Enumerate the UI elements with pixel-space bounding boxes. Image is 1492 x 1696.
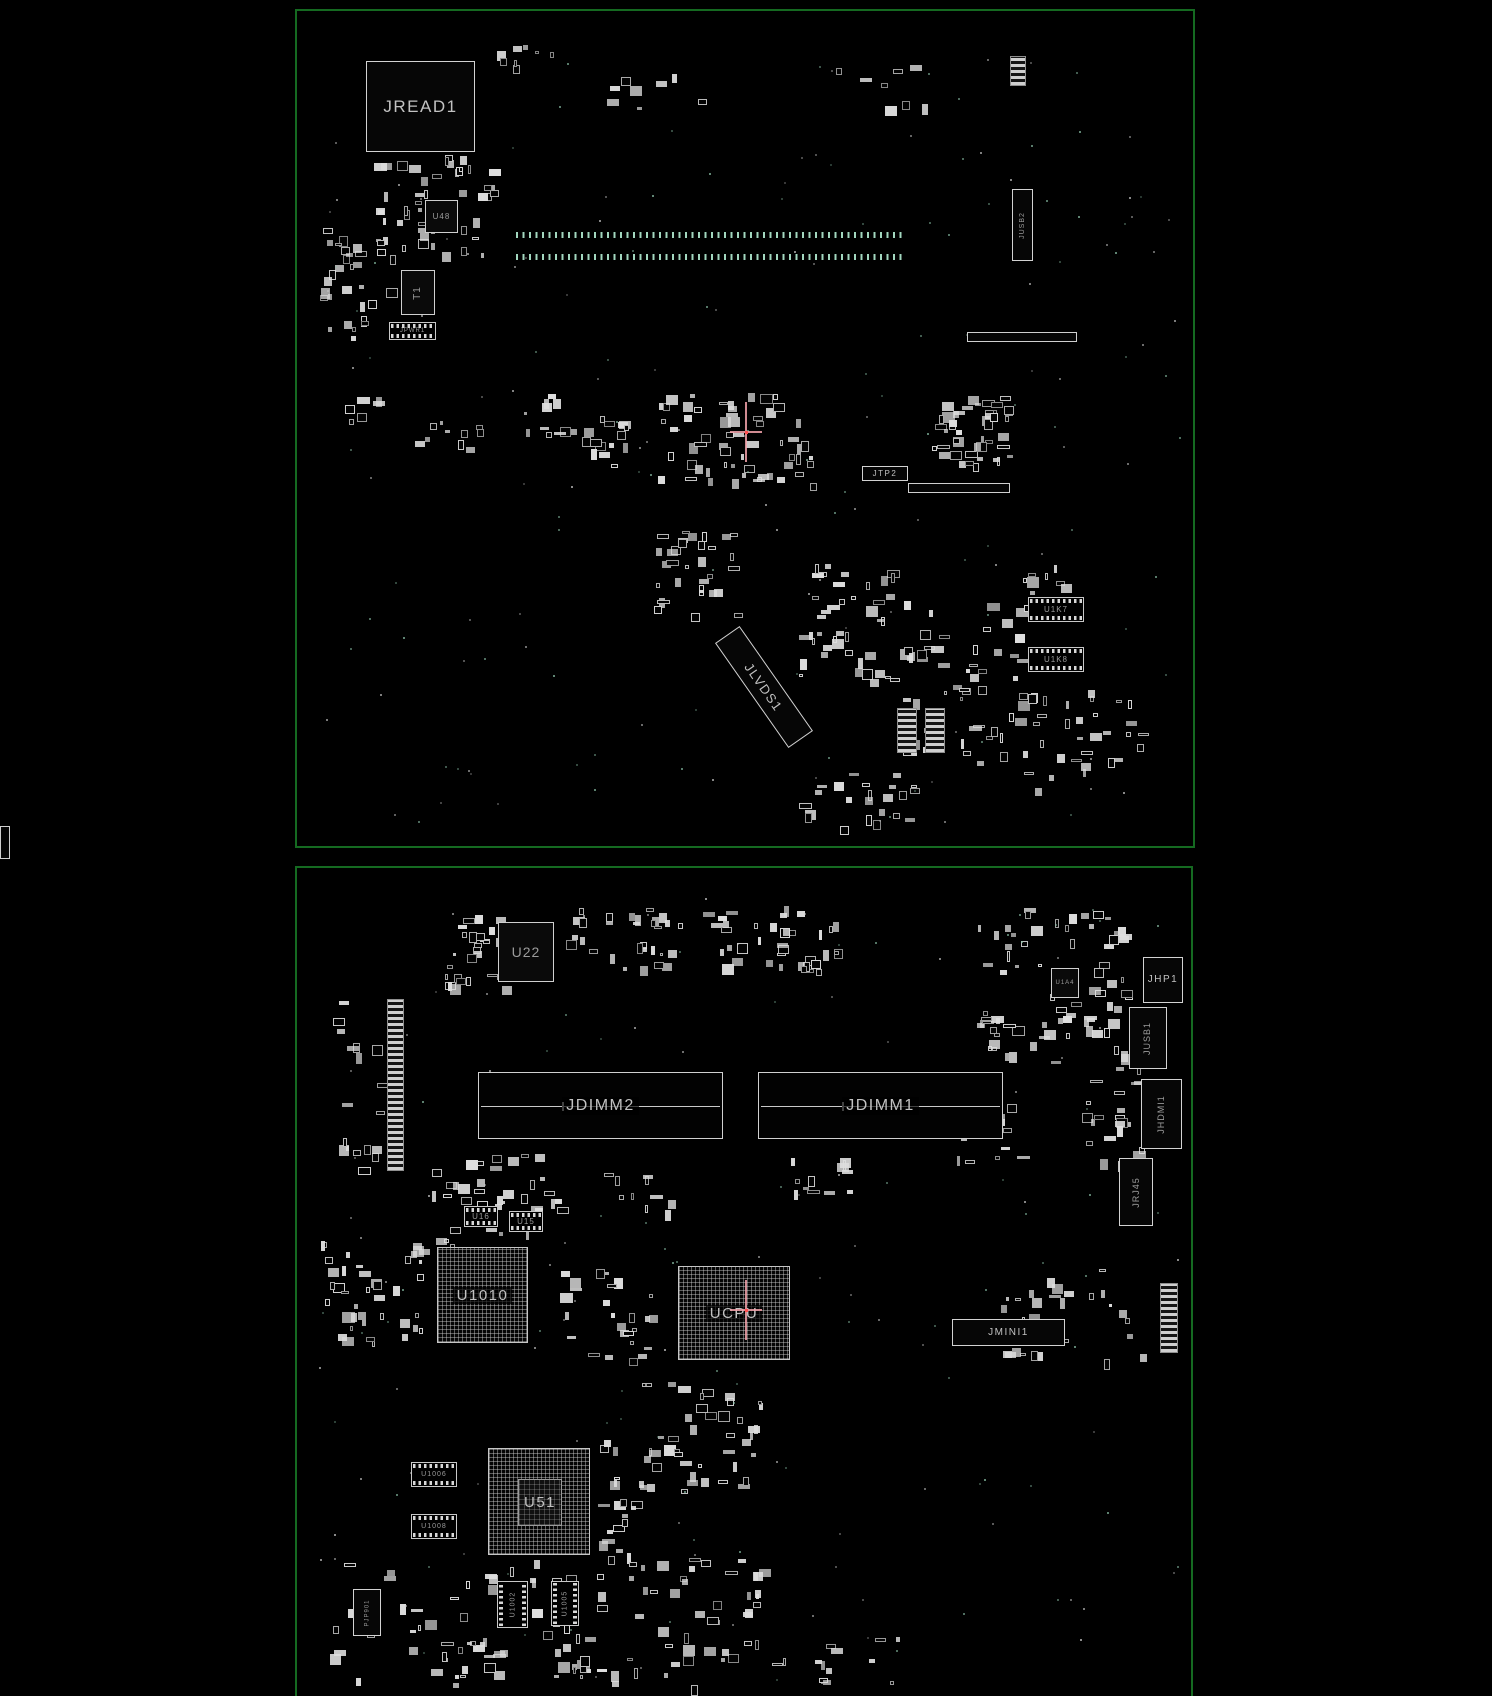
- small-component: [722, 964, 734, 974]
- small-component: [409, 1647, 419, 1655]
- small-component: [487, 974, 497, 977]
- pad-dot: [576, 1440, 578, 1442]
- small-component: [836, 631, 844, 636]
- small-component: [1044, 1030, 1056, 1040]
- small-component: [1029, 1290, 1035, 1298]
- small-component: [753, 416, 764, 421]
- ucpu: UCPU: [678, 1266, 790, 1360]
- vconn-1: [1010, 56, 1026, 86]
- small-component: [1131, 1082, 1140, 1085]
- small-component: [461, 430, 469, 438]
- small-component: [654, 962, 663, 969]
- small-component: [366, 1337, 375, 1342]
- pad-dot: [781, 198, 783, 200]
- small-component: [524, 412, 527, 416]
- small-component: [374, 163, 387, 171]
- small-component: [1005, 925, 1011, 932]
- small-component: [810, 483, 818, 491]
- small-component: [656, 548, 661, 556]
- small-component: [722, 1649, 729, 1657]
- small-component: [1108, 758, 1115, 768]
- pad-dot: [1080, 1639, 1082, 1641]
- u51-label: U51: [524, 1495, 556, 1510]
- small-component: [324, 277, 332, 285]
- jdimm1-label: JDIMM1: [842, 1097, 919, 1115]
- jpwr1: JPWR1: [389, 322, 436, 340]
- small-component: [344, 1563, 356, 1568]
- small-component: [354, 1304, 358, 1309]
- small-component: [383, 218, 386, 226]
- small-component: [720, 447, 731, 456]
- u1010-label: U1010: [453, 1287, 513, 1304]
- pad-dot: [958, 98, 960, 100]
- small-component: [1033, 722, 1040, 726]
- small-component: [1015, 634, 1024, 643]
- small-component: [672, 74, 677, 83]
- small-component: [325, 1257, 333, 1265]
- jusb2-label: JUSB2: [1019, 212, 1026, 239]
- small-component: [742, 473, 747, 478]
- pad-dot: [1057, 957, 1059, 959]
- screen-edge-part: [0, 826, 10, 859]
- small-component: [957, 1156, 961, 1165]
- small-component: [796, 419, 801, 428]
- small-component: [462, 932, 467, 938]
- small-component: [691, 613, 700, 623]
- pad-dot: [679, 951, 681, 953]
- small-component: [494, 1671, 505, 1680]
- pad-dot: [1168, 219, 1170, 221]
- small-component: [698, 541, 706, 550]
- small-component: [660, 953, 664, 956]
- pad-dot: [1059, 261, 1061, 263]
- small-component: [345, 405, 355, 414]
- small-component: [666, 395, 679, 404]
- pad-dot: [896, 1650, 898, 1652]
- small-component: [939, 415, 944, 424]
- pad-dot: [705, 898, 707, 900]
- pad-dot: [979, 1483, 981, 1485]
- small-component: [1025, 911, 1030, 919]
- small-component: [550, 52, 554, 58]
- small-component: [651, 920, 656, 927]
- small-component: [734, 613, 743, 619]
- small-component: [631, 1193, 634, 1200]
- small-component: [723, 921, 730, 927]
- small-component: [657, 1561, 670, 1570]
- pad-dot: [549, 1264, 551, 1266]
- small-component: [877, 619, 884, 622]
- small-component: [714, 589, 723, 597]
- jhdmi1-label: JHDMI1: [1157, 1095, 1166, 1134]
- small-component: [553, 399, 560, 409]
- small-component: [453, 1683, 459, 1688]
- pad-dot: [558, 529, 560, 531]
- small-component: [727, 945, 732, 951]
- small-component: [812, 573, 824, 578]
- small-component: [629, 913, 635, 921]
- small-component: [466, 1160, 478, 1170]
- small-component: [788, 437, 799, 442]
- small-component: [588, 1353, 600, 1358]
- small-component: [910, 65, 923, 71]
- small-component: [1043, 696, 1047, 706]
- small-component: [1086, 1141, 1093, 1146]
- small-component: [1003, 1128, 1012, 1132]
- small-component: [546, 432, 552, 438]
- small-component: [405, 1256, 410, 1264]
- small-component: [607, 1284, 617, 1288]
- small-component: [1091, 1119, 1095, 1126]
- small-component: [597, 1574, 603, 1580]
- small-component: [1101, 1290, 1105, 1298]
- pad-dot: [934, 1325, 936, 1327]
- small-component: [779, 964, 783, 970]
- small-component: [580, 937, 585, 945]
- small-component: [904, 601, 911, 610]
- small-component: [722, 534, 731, 539]
- small-component: [611, 1313, 615, 1317]
- small-component: [534, 1560, 540, 1569]
- small-component: [1066, 1033, 1070, 1039]
- pad-dot: [335, 266, 337, 268]
- small-component: [631, 1506, 636, 1509]
- pad-dot: [1024, 1201, 1026, 1203]
- small-component: [630, 86, 642, 95]
- pad-dot: [361, 1332, 363, 1334]
- small-component: [893, 773, 901, 778]
- small-component: [558, 1662, 570, 1673]
- small-component: [610, 86, 620, 92]
- small-component: [441, 1642, 454, 1645]
- small-component: [347, 1046, 359, 1050]
- small-component: [799, 803, 811, 809]
- small-component: [817, 615, 826, 619]
- jtp2: JTP2: [862, 466, 908, 481]
- pad-dot: [1115, 252, 1117, 254]
- small-component: [617, 1323, 626, 1330]
- conn-bar-1: [967, 332, 1077, 342]
- small-component: [1100, 1159, 1108, 1169]
- small-component: [1114, 1091, 1124, 1095]
- small-component: [744, 465, 755, 473]
- small-component: [691, 1685, 698, 1696]
- small-component: [1015, 965, 1019, 968]
- small-component: [466, 1581, 470, 1590]
- small-component: [931, 646, 944, 653]
- pad-dot: [806, 459, 808, 461]
- pad-dot: [865, 373, 867, 375]
- small-component: [342, 1266, 347, 1276]
- small-component: [639, 1481, 644, 1488]
- small-component: [619, 1195, 624, 1200]
- u1006-label: U1006: [421, 1471, 447, 1478]
- pad-dot: [1093, 1431, 1095, 1433]
- pad-dot: [984, 1479, 986, 1481]
- small-component: [817, 785, 827, 789]
- small-component: [659, 403, 663, 410]
- small-component: [1070, 939, 1075, 949]
- small-component: [725, 1393, 735, 1401]
- small-component: [1121, 977, 1125, 983]
- jrj45: JRJ45: [1119, 1158, 1153, 1226]
- small-component: [1117, 1108, 1125, 1112]
- pad-dot: [1042, 1262, 1044, 1264]
- small-component: [989, 1040, 1000, 1050]
- pad-dot: [798, 1194, 800, 1196]
- small-component: [650, 1590, 658, 1593]
- small-component: [615, 1176, 620, 1186]
- small-component: [372, 1153, 378, 1162]
- small-component: [400, 1319, 410, 1328]
- small-component: [344, 321, 352, 330]
- small-component: [840, 826, 849, 835]
- small-component: [603, 1300, 611, 1305]
- small-component: [607, 99, 618, 105]
- small-component: [922, 104, 928, 114]
- jusb2: JUSB2: [1012, 189, 1033, 261]
- u1005: U1005: [551, 1581, 579, 1626]
- pad-dot: [804, 913, 806, 915]
- small-component: [321, 1241, 326, 1252]
- small-component: [466, 977, 471, 986]
- small-component: [658, 1436, 664, 1439]
- small-component: [731, 464, 735, 468]
- small-component: [1081, 913, 1089, 919]
- small-component: [825, 564, 830, 569]
- small-component: [1118, 927, 1127, 937]
- pad-dot: [1125, 356, 1127, 358]
- pad-dot: [1177, 1259, 1179, 1261]
- small-component: [703, 912, 715, 917]
- small-component: [652, 1463, 662, 1472]
- small-component: [460, 156, 467, 166]
- small-component: [629, 1562, 637, 1567]
- pjp901-label: PJP901: [364, 1599, 370, 1626]
- small-component: [728, 566, 740, 571]
- small-component: [432, 174, 442, 179]
- pad-dot: [1089, 1194, 1091, 1196]
- small-component: [591, 449, 597, 460]
- small-component: [610, 954, 616, 964]
- small-component: [890, 678, 900, 682]
- pad-dot: [445, 766, 447, 768]
- small-component: [462, 1666, 469, 1674]
- small-component: [670, 1589, 680, 1599]
- small-component: [966, 669, 970, 672]
- small-component: [540, 1177, 545, 1181]
- small-component: [755, 1590, 762, 1598]
- small-component: [658, 476, 665, 485]
- small-component: [974, 443, 981, 451]
- small-component: [969, 664, 978, 668]
- small-component: [875, 1638, 886, 1642]
- small-component: [1049, 775, 1054, 781]
- small-component: [358, 1167, 371, 1175]
- pad-dot: [801, 157, 803, 159]
- pad-dot: [1083, 1608, 1085, 1610]
- pad-dot: [570, 1629, 572, 1631]
- u1002-label: U1002: [509, 1592, 516, 1618]
- small-component: [477, 429, 484, 437]
- small-component: [421, 177, 427, 186]
- small-component: [937, 445, 950, 449]
- small-component: [649, 1450, 661, 1456]
- small-component: [1005, 416, 1009, 422]
- small-component: [561, 1271, 571, 1277]
- small-component: [737, 943, 748, 954]
- small-component: [418, 208, 422, 211]
- jdimm2: JDIMM2: [478, 1072, 723, 1139]
- small-component: [823, 1680, 831, 1685]
- u1a4: U1A4: [1051, 968, 1079, 998]
- pad-dot: [1177, 1566, 1179, 1568]
- small-component: [623, 967, 627, 972]
- small-component: [953, 411, 960, 418]
- small-component: [649, 1294, 652, 1298]
- pad-dot: [477, 1483, 479, 1485]
- u16: U16: [464, 1206, 498, 1227]
- small-component: [627, 1658, 633, 1661]
- pad-dot: [739, 1551, 741, 1553]
- small-component: [442, 252, 451, 261]
- small-component: [467, 954, 477, 963]
- small-component: [411, 1609, 423, 1612]
- pad-dot: [889, 816, 891, 818]
- small-component: [965, 461, 974, 466]
- small-component: [356, 1678, 361, 1686]
- pad-dot: [632, 250, 634, 252]
- small-component: [1063, 1016, 1072, 1023]
- small-component: [357, 413, 367, 422]
- small-component: [576, 1634, 581, 1644]
- small-component: [668, 1382, 676, 1386]
- small-component: [445, 974, 448, 980]
- small-component: [990, 413, 998, 422]
- pad-dot: [887, 1041, 889, 1043]
- small-component: [873, 600, 885, 605]
- u1k7: U1K7: [1028, 597, 1084, 622]
- small-component: [341, 1291, 349, 1294]
- small-component: [544, 399, 549, 408]
- small-component: [1011, 933, 1016, 937]
- jmini1-label: JMINI1: [988, 1328, 1029, 1338]
- small-component: [730, 533, 739, 537]
- small-component: [1090, 733, 1102, 741]
- jtp2-label: JTP2: [873, 470, 898, 478]
- pad-dot: [1079, 131, 1081, 133]
- small-component: [1116, 700, 1122, 703]
- small-component: [514, 60, 517, 67]
- small-component: [1126, 732, 1131, 737]
- small-component: [741, 454, 744, 459]
- small-component: [823, 950, 830, 960]
- pad-dot: [418, 821, 420, 823]
- small-component: [448, 982, 453, 992]
- pad-dot: [1090, 758, 1092, 760]
- small-component: [723, 1450, 735, 1453]
- small-component: [1013, 676, 1018, 681]
- small-component: [718, 1480, 727, 1484]
- small-component: [579, 908, 583, 915]
- small-component: [458, 925, 467, 930]
- small-component: [1000, 970, 1007, 975]
- pad-dot: [599, 220, 601, 222]
- small-component: [1128, 700, 1132, 709]
- pad-dot: [394, 814, 396, 816]
- small-component: [404, 206, 407, 216]
- small-component: [664, 1673, 667, 1678]
- pad-dot: [514, 266, 516, 268]
- pad-dot: [387, 1321, 389, 1323]
- ucpu-label: UCPU: [706, 1305, 763, 1322]
- pad-dot: [428, 1566, 430, 1568]
- small-component: [607, 1530, 613, 1535]
- small-component: [780, 440, 783, 446]
- small-component: [616, 1549, 623, 1553]
- small-component: [432, 1169, 442, 1176]
- pad-dot: [1123, 792, 1125, 794]
- small-component: [463, 918, 475, 924]
- small-component: [353, 262, 361, 268]
- small-component: [1009, 1052, 1017, 1063]
- small-component: [1077, 737, 1082, 740]
- small-component: [1020, 1353, 1026, 1356]
- small-component: [1103, 731, 1112, 736]
- small-component: [328, 327, 332, 332]
- small-component: [829, 926, 833, 934]
- small-component: [1012, 1348, 1021, 1357]
- jhp1: JHP1: [1143, 957, 1183, 1003]
- small-component: [1007, 951, 1010, 962]
- small-component: [659, 913, 666, 923]
- small-component: [599, 1541, 608, 1551]
- small-component: [707, 574, 712, 579]
- small-component: [1086, 1101, 1091, 1104]
- small-component: [1045, 573, 1048, 580]
- small-component: [327, 240, 333, 246]
- small-component: [1056, 1007, 1067, 1014]
- small-component: [987, 603, 1000, 611]
- small-component: [352, 327, 355, 331]
- small-component: [1054, 565, 1058, 574]
- small-component: [458, 1647, 464, 1654]
- small-component: [343, 255, 350, 264]
- small-component: [695, 1611, 705, 1618]
- small-component: [1001, 1305, 1008, 1313]
- small-component: [667, 549, 678, 556]
- small-component: [1104, 1359, 1110, 1370]
- small-component: [510, 1567, 514, 1578]
- small-component: [419, 1328, 423, 1333]
- small-component: [789, 454, 796, 462]
- pad-dot: [395, 582, 397, 584]
- pad-dot: [1007, 934, 1009, 936]
- small-component: [668, 1436, 680, 1442]
- small-component: [1089, 1293, 1095, 1300]
- small-component: [1126, 721, 1136, 726]
- small-component: [629, 1576, 634, 1580]
- small-component: [623, 1331, 634, 1336]
- pad-dot: [1059, 378, 1061, 380]
- pad-dot: [944, 821, 946, 823]
- small-component: [335, 243, 342, 246]
- small-component: [849, 773, 859, 776]
- small-component: [815, 790, 822, 795]
- small-component: [812, 596, 820, 600]
- small-component: [738, 1559, 746, 1563]
- small-component: [959, 688, 970, 692]
